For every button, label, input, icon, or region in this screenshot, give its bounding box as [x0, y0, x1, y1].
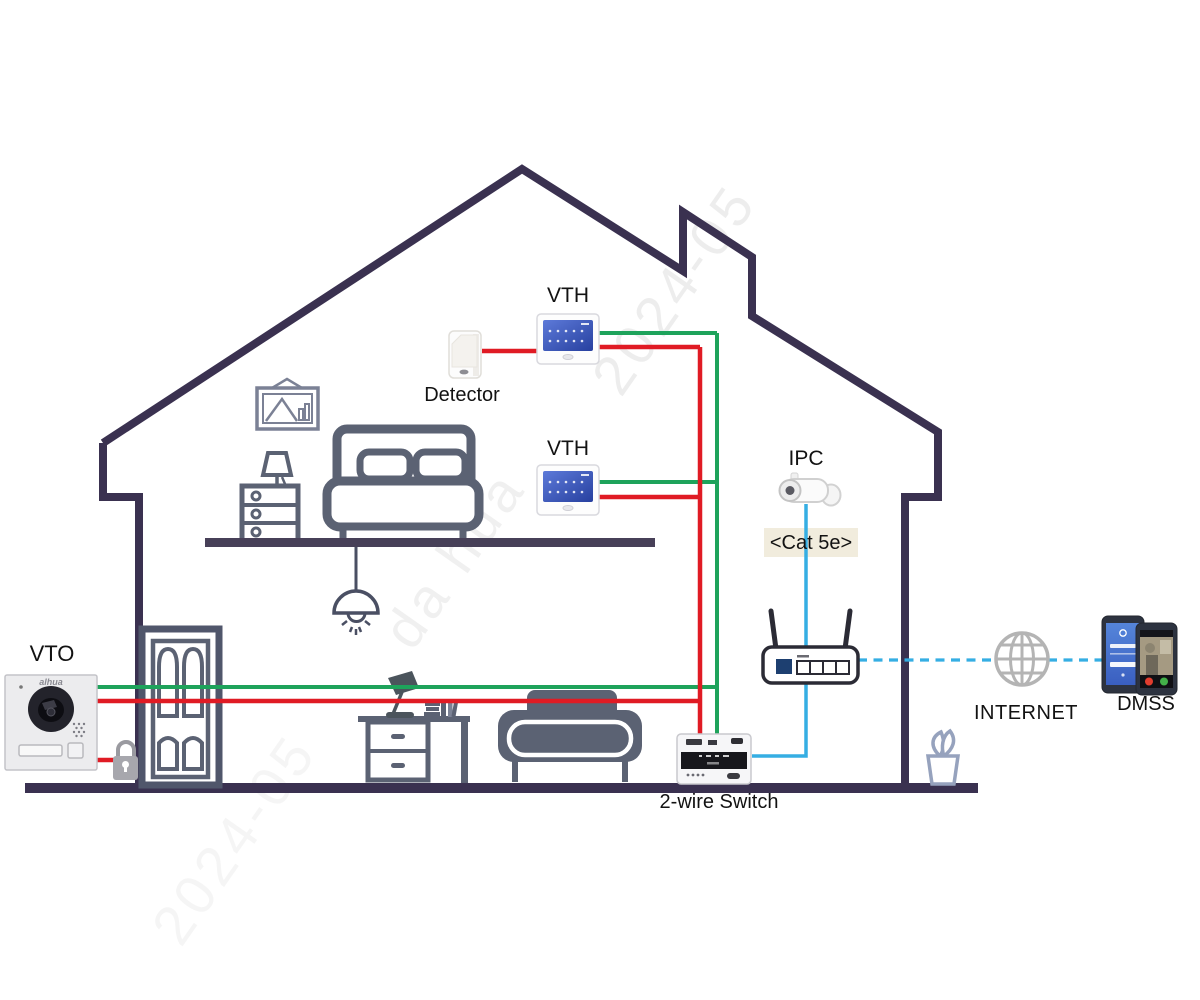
- leaf-right: [942, 731, 953, 756]
- drawer-handle-1: [391, 734, 405, 739]
- pillow-left: [360, 452, 410, 479]
- detector-indicator: [460, 370, 469, 375]
- picture-frame: [257, 379, 318, 429]
- smart-home-intercom-diagram: 2024-05 da hua 2024-05: [0, 0, 1200, 1000]
- floor-divider: [205, 538, 655, 547]
- dmss-label: DMSS: [1117, 693, 1175, 715]
- vto-nameplate: [19, 745, 62, 756]
- dahua-logo: alhua: [39, 677, 63, 687]
- ipc-label: IPC: [788, 447, 823, 470]
- switch-front-band: [681, 752, 747, 769]
- router-antenna-left: [771, 611, 776, 649]
- dmss-phones: [1102, 616, 1177, 695]
- vth-lower-label: VTH: [547, 437, 589, 460]
- diagram-canvas: 2024-05 da hua 2024-05: [0, 0, 1200, 1000]
- detector-device: [449, 331, 481, 378]
- phone-video-call: [1136, 623, 1177, 695]
- watermark-date: 2024-05: [579, 172, 769, 405]
- front-door: [142, 629, 219, 785]
- router-antenna-right: [845, 611, 850, 649]
- answer-button: [1160, 678, 1168, 686]
- nightstand: [242, 486, 298, 541]
- house-outline: [103, 169, 938, 785]
- internet-globe-icon: [996, 633, 1048, 685]
- vth-upper-label: VTH: [547, 284, 589, 307]
- roof-and-right-wall: [103, 169, 938, 785]
- watermark-layer: 2024-05 da hua 2024-05: [139, 172, 769, 955]
- drawer-handle-2: [391, 763, 405, 768]
- vto-device: alhua: [5, 675, 97, 770]
- router-device: [763, 611, 858, 683]
- door-panel-br: [184, 738, 202, 769]
- vto-call-button: [68, 743, 83, 758]
- lock-icon: [113, 742, 138, 780]
- pillow-right: [416, 452, 465, 479]
- router-wan-port: [776, 659, 792, 674]
- vth-upper-device: [537, 314, 599, 364]
- door-panel-bl: [159, 738, 177, 769]
- vto-label: VTO: [30, 641, 75, 666]
- left-eave-and-wall: [103, 443, 139, 785]
- wire-cyan-router-to-switch: [752, 683, 806, 756]
- hangup-button: [1145, 678, 1153, 686]
- vto-led: [19, 685, 23, 689]
- door-panel-tl: [159, 649, 177, 716]
- two-wire-switch-device: [677, 734, 751, 784]
- cat5e-label: <Cat 5e>: [770, 532, 852, 554]
- plant-pot: [928, 731, 958, 784]
- bed: [327, 429, 479, 543]
- vth-lower-device: [537, 465, 599, 515]
- door-panel-tr: [184, 649, 202, 716]
- internet-label: INTERNET: [974, 702, 1078, 724]
- sofa: [498, 690, 642, 782]
- mattress: [327, 481, 479, 527]
- two-wire-switch-label: 2-wire Switch: [660, 791, 779, 813]
- ipc-camera: [780, 473, 841, 506]
- detector-label: Detector: [424, 384, 500, 406]
- desk-lamp: [386, 671, 419, 718]
- table-lamp: [263, 453, 291, 487]
